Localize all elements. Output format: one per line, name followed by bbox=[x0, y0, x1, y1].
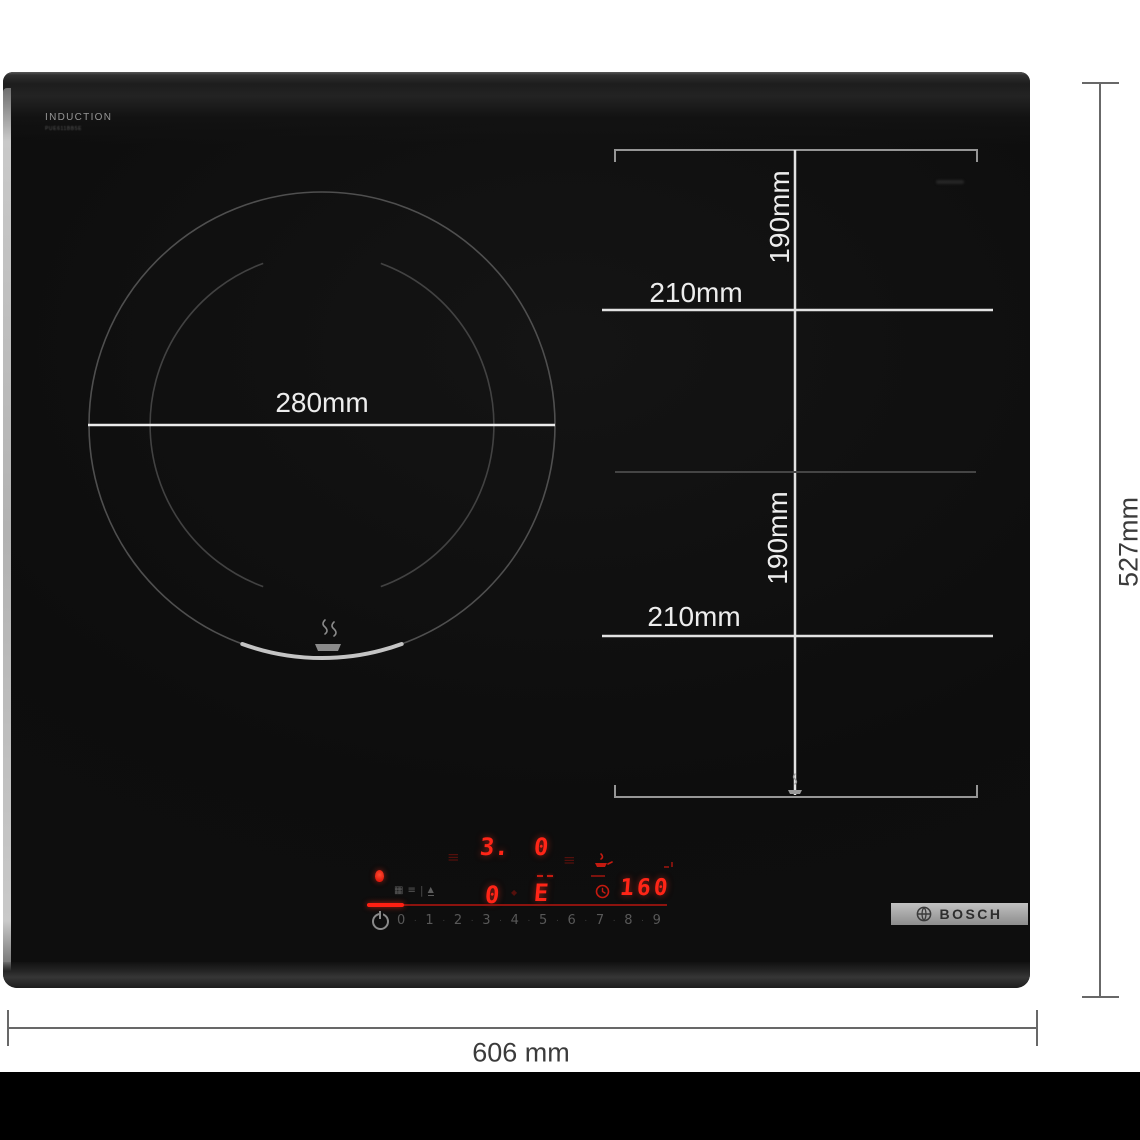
power-button-icon bbox=[372, 913, 389, 930]
scale-dot: · bbox=[613, 915, 616, 926]
scale-dot: · bbox=[414, 915, 417, 926]
ghost-segment-right: ≡ bbox=[563, 853, 576, 868]
ghost-dot: ◆ bbox=[511, 889, 517, 897]
clock-icon bbox=[595, 884, 611, 900]
bottom-black-band bbox=[0, 1072, 1140, 1140]
scale-dot: · bbox=[499, 915, 502, 926]
zone-markings bbox=[3, 72, 1030, 988]
pan-steam-icon bbox=[315, 620, 341, 651]
power-level-scale: 0 · 1 · 2 · 3 · 4 · 5 · 6 · 7 · 8 · 9 bbox=[397, 912, 661, 928]
width-dimension-line bbox=[8, 1027, 1037, 1029]
depth-dimension-label: 527mm bbox=[1114, 497, 1140, 587]
depth-dimension-line bbox=[1099, 83, 1101, 997]
scale-dot: · bbox=[442, 915, 445, 926]
zone-display-bottom-right: E bbox=[533, 881, 550, 905]
bosch-symbol-icon bbox=[916, 906, 932, 922]
scale-number: 5 bbox=[539, 913, 547, 928]
scale-number: 7 bbox=[596, 913, 604, 928]
power-slider-track bbox=[367, 904, 667, 906]
scale-number: 4 bbox=[511, 913, 519, 928]
bosch-logo-badge: BOSCH bbox=[891, 903, 1028, 925]
induction-hob: INDUCTION PUE611BB5E bbox=[3, 72, 1030, 988]
flex-display-mark bbox=[537, 875, 543, 877]
product-dimension-diagram: INDUCTION PUE611BB5E bbox=[0, 0, 1140, 1140]
icon-divider: | bbox=[420, 885, 424, 896]
width-dimension-label: 606 mm bbox=[472, 1038, 570, 1069]
flex-display-mark bbox=[547, 875, 553, 877]
flex-bottom-width-label: 210mm bbox=[647, 601, 740, 633]
scale-number: 8 bbox=[624, 913, 632, 928]
power-indicator-icon bbox=[375, 870, 384, 882]
zone-display-top-right: 0 bbox=[533, 835, 550, 859]
timer-unit-mark bbox=[671, 862, 673, 867]
scale-dot: · bbox=[641, 915, 644, 926]
ghost-segment-left: ≡ bbox=[447, 850, 460, 865]
flex-top-depth-label: 190mm bbox=[764, 170, 796, 263]
flex-bottom-depth-label: 190mm bbox=[762, 491, 794, 584]
timer-minus-mark bbox=[591, 875, 605, 877]
scale-dot: · bbox=[556, 915, 559, 926]
scale-number: 0 bbox=[397, 913, 405, 928]
timer-display: 160 bbox=[619, 877, 672, 900]
width-dimension-cap-left bbox=[7, 1010, 9, 1046]
bosch-logo-text: BOSCH bbox=[939, 907, 1002, 921]
function-icons: ▦ ≡ | ▲ bbox=[394, 885, 434, 896]
flex-top-width-label: 210mm bbox=[649, 277, 742, 309]
main-zone-diameter-label: 280mm bbox=[275, 387, 368, 419]
width-dimension-cap-right bbox=[1036, 1010, 1038, 1046]
pause-icon: ▦ bbox=[394, 886, 403, 896]
scale-number: 9 bbox=[653, 913, 661, 928]
scale-number: 3 bbox=[482, 913, 490, 928]
scale-number: 2 bbox=[454, 913, 462, 928]
scale-dot: · bbox=[527, 915, 530, 926]
scale-number: 1 bbox=[425, 913, 433, 928]
scale-dot: · bbox=[584, 915, 587, 926]
lift-icon: ▲ bbox=[428, 886, 434, 896]
timer-unit-mark bbox=[664, 866, 669, 868]
scale-dot: · bbox=[470, 915, 473, 926]
depth-dimension-cap-top bbox=[1082, 82, 1119, 84]
menu-icon: ≡ bbox=[407, 886, 415, 896]
pan-move-icon bbox=[591, 851, 613, 869]
slider-active-segment bbox=[367, 903, 404, 907]
scale-number: 6 bbox=[567, 913, 575, 928]
zone-display-top-left: 3. bbox=[479, 835, 510, 859]
depth-dimension-cap-bottom bbox=[1082, 996, 1119, 998]
